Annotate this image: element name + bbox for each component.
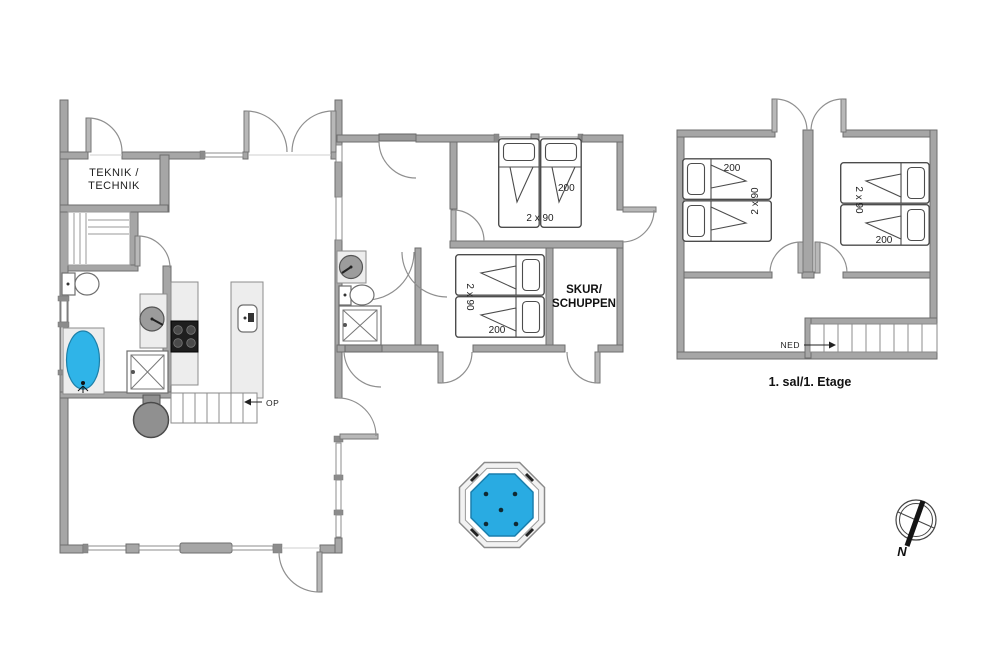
annex-shower xyxy=(339,306,381,345)
stairs-up xyxy=(171,393,262,423)
first-floor xyxy=(677,99,937,359)
stairs-down-label: NED xyxy=(781,340,800,350)
stairs-up-label: OP xyxy=(266,398,279,408)
bathroom-sink xyxy=(140,294,167,348)
compass-north-label: N xyxy=(897,544,907,559)
bed-size-label: 2 x 90 xyxy=(853,186,864,214)
bed-size-label: 2 x 90 xyxy=(464,283,475,311)
stairs-down xyxy=(804,324,937,352)
bed-length-label: 200 xyxy=(489,325,506,336)
bed-length-label: 200 xyxy=(558,183,575,194)
teknik-room-label-line1: TEKNIK / xyxy=(89,167,139,179)
kitchen-island xyxy=(231,282,263,398)
skur-room-label-line2: SCHUPPEN xyxy=(552,298,616,310)
annex-toilet xyxy=(339,285,374,305)
first-floor-caption: 1. sal/1. Etage xyxy=(769,375,852,389)
bathtub xyxy=(63,328,104,394)
floor-plan-drawing: TEKNIK / TECHNIK SKUR/ SCHUPPEN OP NED 2… xyxy=(0,0,1000,667)
hot-tub xyxy=(460,463,545,548)
bed-length-label: 200 xyxy=(724,163,741,174)
annex xyxy=(337,134,656,387)
teknik-room-label-line2: TECHNIK xyxy=(88,180,140,192)
bed-length-label: 200 xyxy=(876,235,893,246)
cooktop xyxy=(171,321,198,352)
annex-sink xyxy=(337,251,366,283)
storage-shelves xyxy=(68,212,130,265)
bed-size-label: 2 x 90 xyxy=(750,187,761,215)
bed-size-label: 2 x 90 xyxy=(526,213,554,224)
skur-room-label-line1: SKUR/ xyxy=(566,284,603,296)
floor-plan-page: TEKNIK / TECHNIK SKUR/ SCHUPPEN OP NED 2… xyxy=(0,0,1000,667)
shower xyxy=(127,351,168,393)
compass-icon xyxy=(890,494,943,547)
wood-stove xyxy=(134,395,169,438)
toilet xyxy=(62,273,99,295)
